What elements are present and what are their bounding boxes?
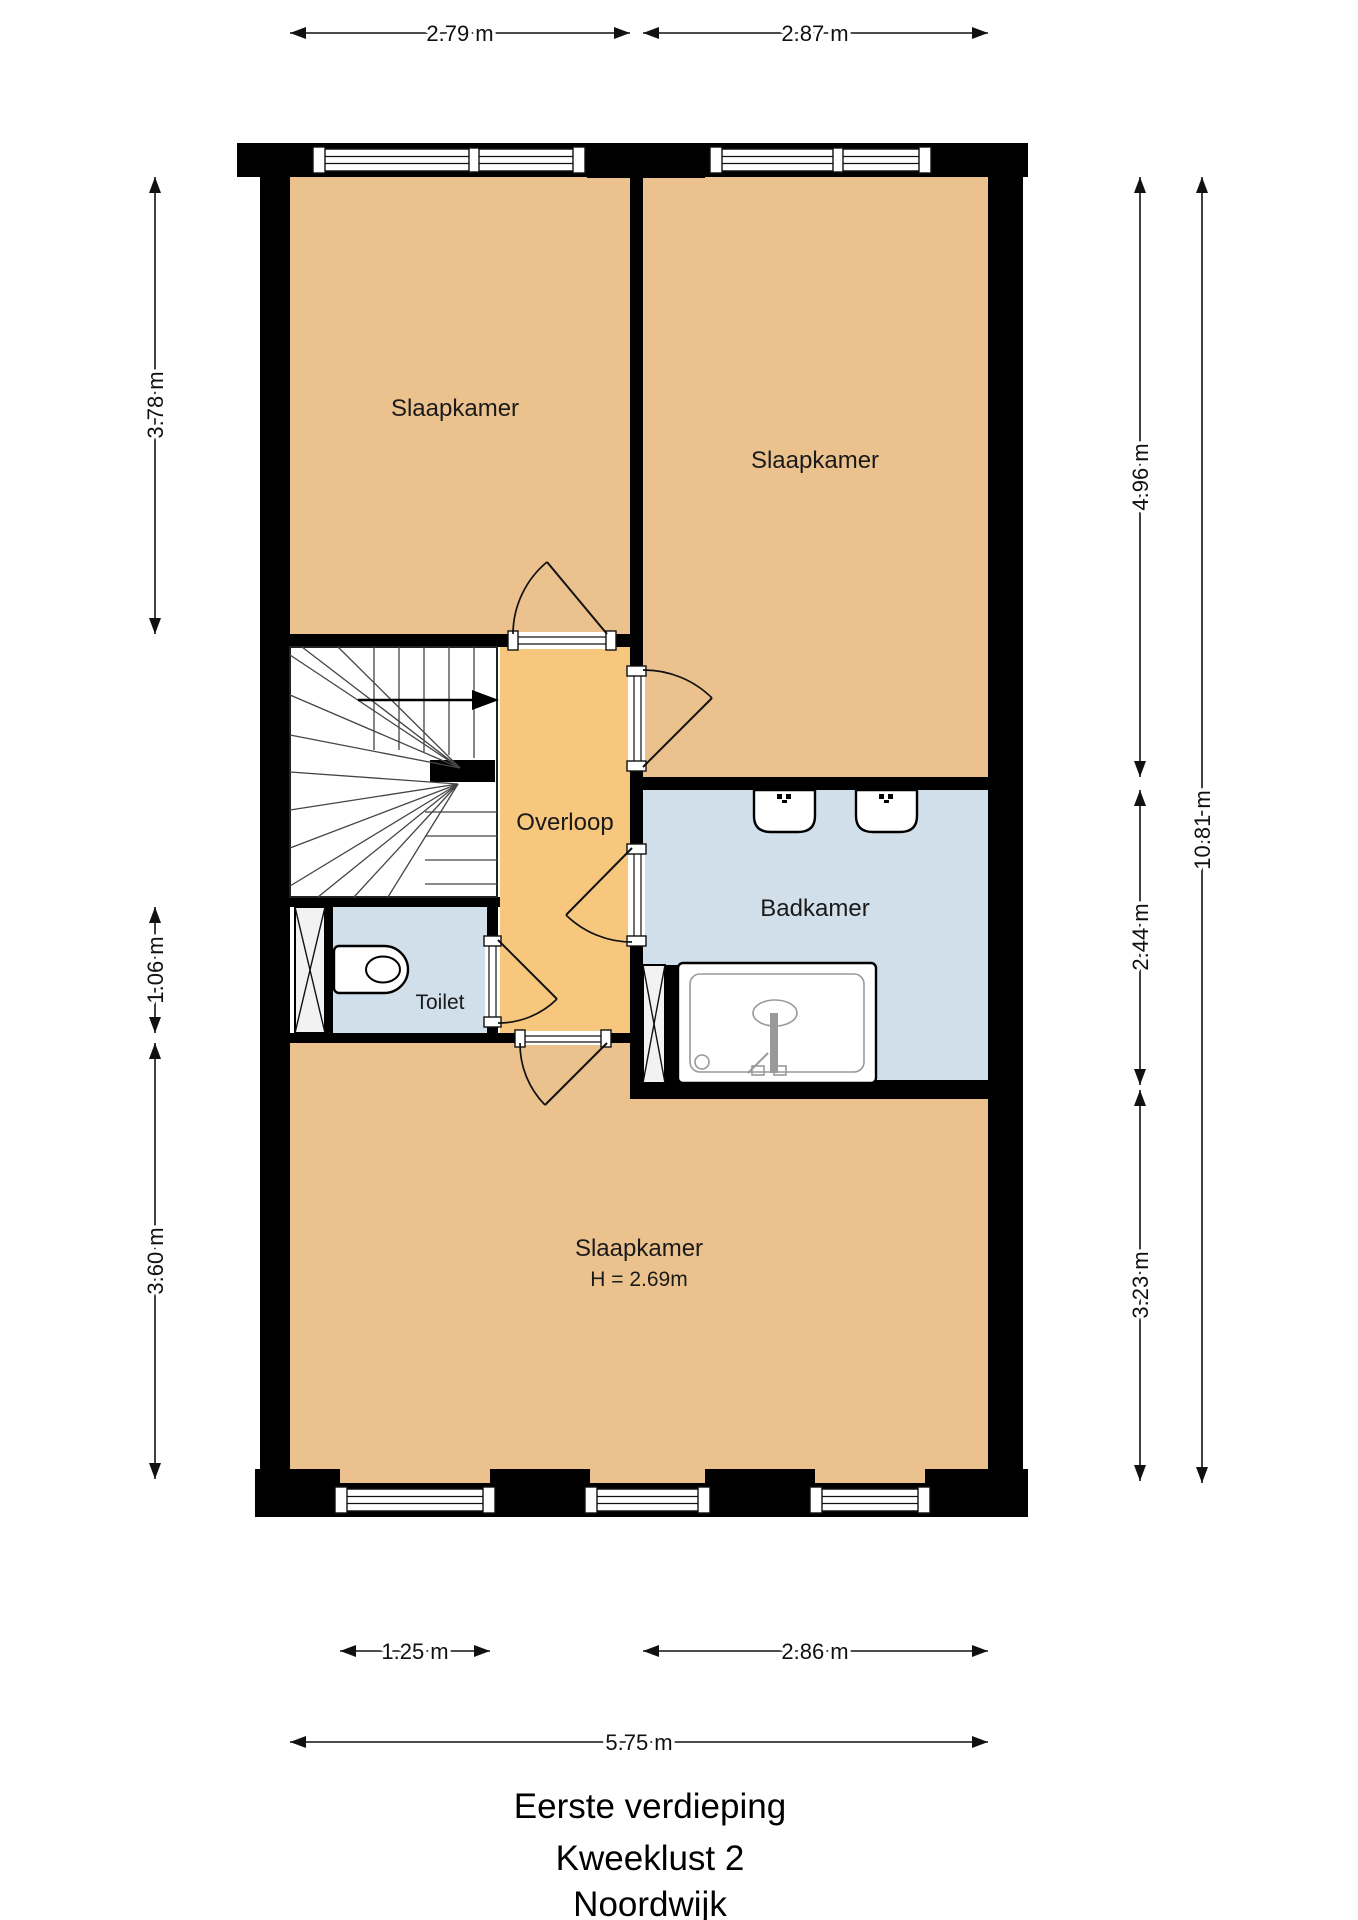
label-bedroom-top-left: Slaapkamer (391, 395, 519, 422)
label-bedroom-bottom: Slaapkamer (575, 1235, 703, 1262)
svg-text:2.86 m: 2.86 m (781, 1639, 848, 1664)
svg-text:3.78 m: 3.78 m (143, 371, 168, 438)
dimension-top-room-left: 2.79 m (290, 21, 630, 46)
dimension-top-room-right: 2.87 m (643, 21, 988, 46)
title-floor: Eerste verdieping (514, 1787, 786, 1826)
pier-top-left (237, 143, 318, 177)
wall-bathroom-north (643, 777, 988, 790)
dimension-right-total: 10.81 m (1190, 177, 1215, 1483)
dimension-right-496: 4.96 m (1128, 177, 1153, 777)
sink-icon (754, 790, 815, 832)
svg-text:2.44 m: 2.44 m (1128, 903, 1153, 970)
svg-text:5.75 m: 5.75 m (605, 1730, 672, 1755)
svg-text:3.23 m: 3.23 m (1128, 1251, 1153, 1318)
shower-icon (678, 963, 876, 1083)
sink-icon (856, 790, 917, 832)
room-bedroom-top-right (643, 177, 988, 777)
title-project: Kweeklust 2 (556, 1839, 745, 1878)
window-mullion (469, 148, 479, 172)
pier-bottom-left (255, 1469, 340, 1517)
wall-shower-divider (665, 965, 678, 1083)
window-top-left (313, 147, 585, 173)
svg-text:2.87 m: 2.87 m (781, 21, 848, 46)
dimension-bottom-total: 5.75 m (290, 1730, 988, 1755)
pier-top-right (925, 143, 1028, 177)
pier-bottom-right (925, 1469, 1028, 1517)
wall-stairs-south (260, 897, 500, 907)
pier-bottom-mid2 (705, 1469, 815, 1517)
dimension-left-378: 3.78 m (143, 177, 168, 634)
wall-stair-newel-stub (430, 760, 495, 782)
dimension-left-106: 1.06 m (143, 907, 168, 1033)
wall-right (988, 143, 1023, 1517)
room-landing-overloop (500, 647, 630, 1043)
svg-text:3.60 m: 3.60 m (143, 1227, 168, 1294)
svg-text:10.81 m: 10.81 m (1190, 790, 1215, 870)
title-city: Noordwijk (573, 1885, 727, 1920)
svg-text:1.25 m: 1.25 m (381, 1639, 448, 1664)
window-bottom-right (810, 1487, 930, 1513)
label-bathroom: Badkamer (760, 895, 869, 922)
svg-text:4.96 m: 4.96 m (1128, 443, 1153, 510)
svg-text:2.79 m: 2.79 m (426, 21, 493, 46)
label-bedroom-top-right: Slaapkamer (751, 447, 879, 474)
pier-top-middle (587, 143, 705, 178)
wall-middle-vertical (630, 177, 643, 1099)
dimension-right-244: 2.44 m (1128, 790, 1153, 1085)
window-bottom-left (335, 1487, 495, 1513)
wall-shaft-toilet-divider (325, 907, 333, 1033)
label-landing: Overloop (516, 809, 613, 836)
dimension-right-323: 3.23 m (1128, 1090, 1153, 1481)
title-block: Eerste verdieping Kweeklust 2 Noordwijk (514, 1787, 786, 1920)
pier-bottom-mid1 (490, 1469, 590, 1517)
room-bedroom-bottom (290, 1043, 988, 1483)
toilet-icon (334, 946, 408, 993)
label-toilet: Toilet (415, 991, 464, 1014)
window-bottom-middle (585, 1487, 710, 1513)
window-top-right (710, 147, 931, 173)
svg-text:1.06 m: 1.06 m (143, 936, 168, 1003)
dimension-bottom-286: 2.86 m (643, 1639, 988, 1664)
floorplan-canvas: Slaapkamer Slaapkamer Overloop Badkamer … (0, 0, 1358, 1920)
label-bedroom-bottom-height: H = 2.69m (590, 1268, 687, 1291)
wall-left (260, 143, 290, 1517)
window-mullion (833, 148, 843, 172)
dimension-bottom-125: 1.25 m (340, 1639, 490, 1664)
floorplan-page: Slaapkamer Slaapkamer Overloop Badkamer … (0, 0, 1358, 1920)
dimension-left-360: 3.60 m (143, 1043, 168, 1479)
